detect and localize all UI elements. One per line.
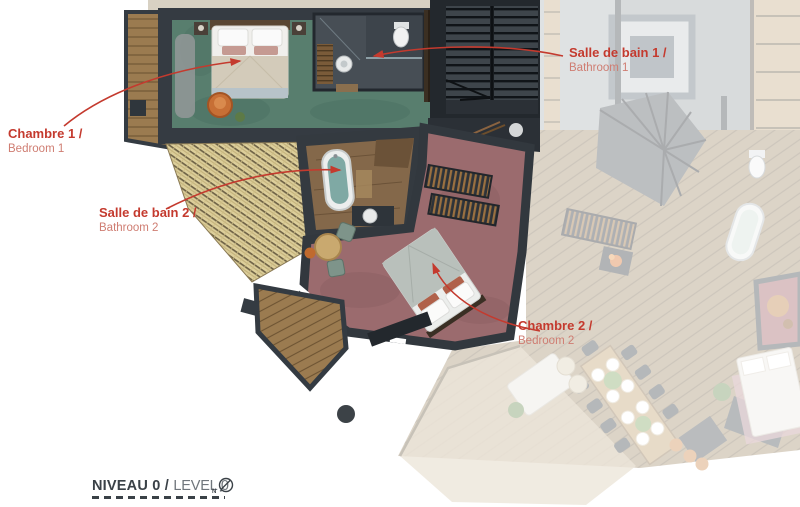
annotation-title: Salle de bain 2 / <box>99 205 197 221</box>
annotation-bathroom2: Salle de bain 2 / Bathroom 2 <box>99 205 197 236</box>
floor-plan-page: Chambre 1 / Bedroom 1 Salle de bain 1 / … <box>0 0 800 507</box>
bed-bedroom1 <box>210 20 290 98</box>
annotation-subtitle: Bathroom 1 <box>569 61 667 75</box>
armchair-orange <box>208 93 232 117</box>
column-dot <box>337 405 355 423</box>
annotation-subtitle: Bathroom 2 <box>99 221 197 235</box>
bathroom1 <box>314 14 424 92</box>
annotation-bathroom1: Salle de bain 1 / Bathroom 1 <box>569 45 667 76</box>
dashed-underline <box>92 496 225 499</box>
annotation-title: Chambre 2 / <box>518 318 592 334</box>
floor-plan-drawing <box>0 0 800 507</box>
level-label-fr: NIVEAU 0 / <box>92 478 169 494</box>
annotation-subtitle: Bedroom 2 <box>518 334 592 348</box>
ghost-red-room <box>756 274 800 348</box>
toilet <box>394 27 409 47</box>
plant <box>235 112 245 122</box>
bathtub <box>321 149 355 212</box>
ghost-toilet <box>749 150 765 178</box>
ghost-ladder-strip <box>544 0 560 140</box>
ghost-balcony-right <box>752 0 800 148</box>
balcony-bedroom2 <box>240 286 346 388</box>
sink <box>363 209 377 223</box>
annotation-title: Chambre 1 / <box>8 126 82 142</box>
ghost-plant <box>713 383 731 401</box>
annotation-bedroom1: Chambre 1 / Bedroom 1 <box>8 126 82 157</box>
ghost-plant <box>508 402 524 418</box>
compass-north-label: N <box>212 489 216 495</box>
vanity-cabinet <box>317 44 333 84</box>
level-indicator: NIVEAU 0 / LEVEL 0 <box>92 477 229 495</box>
annotation-bedroom2: Chambre 2 / Bedroom 2 <box>518 318 592 349</box>
annotation-subtitle: Bedroom 1 <box>8 142 82 156</box>
compass-icon: N <box>210 476 240 498</box>
staircase <box>430 0 540 118</box>
annotation-title: Salle de bain 1 / <box>569 45 667 61</box>
fur-bench <box>175 34 195 118</box>
